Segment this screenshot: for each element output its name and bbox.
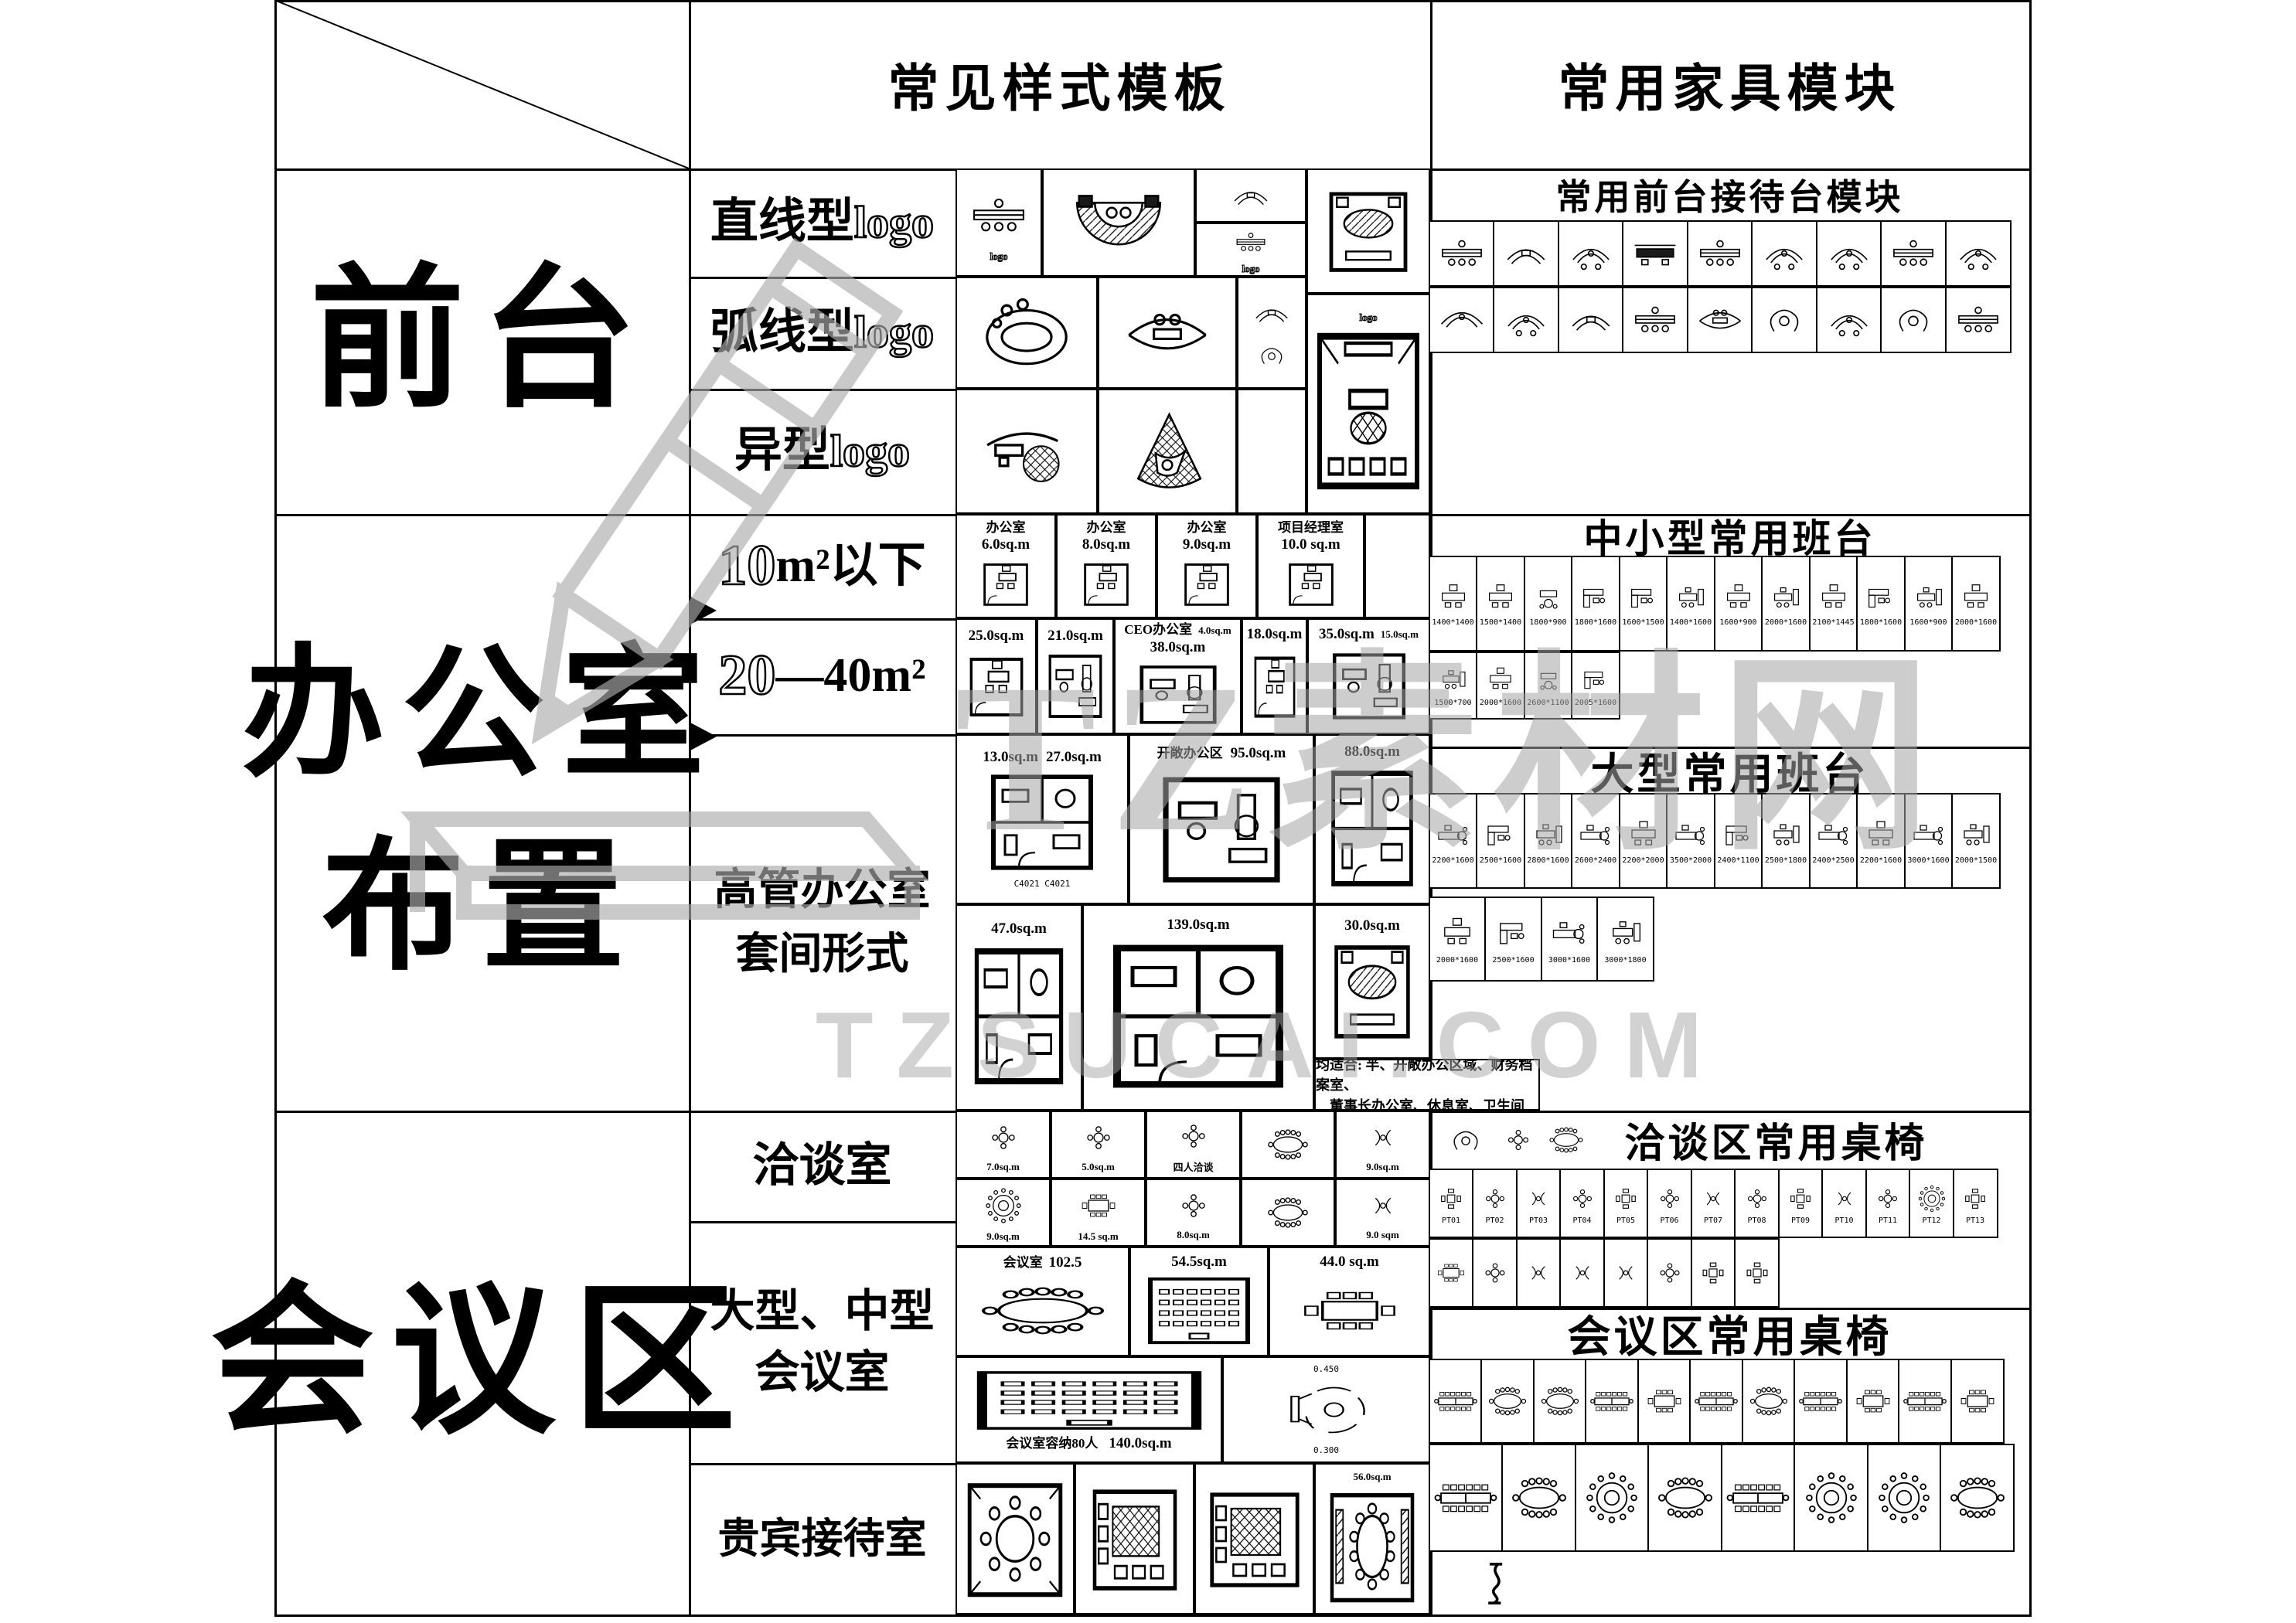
vip-round-room-icon xyxy=(961,1472,1069,1605)
template-straight-reception-4 xyxy=(1306,168,1430,294)
furniture-cell: PT10 xyxy=(1821,1169,1867,1238)
furniture-cell xyxy=(1687,287,1753,353)
classroom-plan-icon xyxy=(1141,1273,1257,1349)
furniture-cell: 1500*700 xyxy=(1429,652,1478,720)
furniture-cell: 2000*1500 xyxy=(1951,793,2001,889)
conference-table-icon xyxy=(1507,1465,1572,1530)
negotiation-table-icon xyxy=(983,1117,1024,1159)
executive-line2: 套间形式 xyxy=(736,930,909,979)
table-chair-icon xyxy=(1828,1182,1862,1216)
dimension-label: 1800*1600 xyxy=(1860,619,1902,627)
executive-suite-plan-icon xyxy=(1102,935,1295,1097)
header-large-desks: 大型常用班台 xyxy=(1430,748,2029,793)
conference-table-icon xyxy=(1725,1465,1790,1530)
row-label-executive-suite: 高管办公室 套间形式 xyxy=(689,734,956,1111)
furniture-cell: 1500*1400 xyxy=(1476,556,1525,652)
row-label-large-medium-meeting: 大型、中型 会议室 xyxy=(689,1221,956,1463)
room-area: 56.0sq.m xyxy=(1353,1471,1391,1483)
table-chair-icon xyxy=(1871,1182,1905,1216)
furniture-cell xyxy=(1816,220,1882,287)
small-desk-row1: 1400*1400 1500*1400 1800*900 1800*1600 1… xyxy=(1430,556,2001,652)
furniture-cell xyxy=(1751,220,1817,287)
furniture-cell xyxy=(1558,287,1624,353)
room-area-secondary: 4.0sq.m xyxy=(1198,624,1231,637)
room-area: 25.0sq.m xyxy=(969,628,1024,645)
meeting-blocks-row1 xyxy=(1430,1359,2005,1444)
furniture-cell xyxy=(1691,1238,1736,1308)
dimension-label: 1400*1600 xyxy=(1670,619,1712,627)
dimension-label: 1600*900 xyxy=(1909,619,1947,627)
room-area: 21.0sq.m xyxy=(1048,628,1103,645)
dim-label: 0.450 xyxy=(1313,1364,1339,1374)
num-10: 10 xyxy=(718,533,775,599)
furniture-cell xyxy=(1472,1238,1518,1308)
open-office-plan-icon xyxy=(1152,764,1291,893)
furniture-glyph-icon xyxy=(1565,294,1616,345)
dimension-label: 2005*1600 xyxy=(1575,699,1616,707)
template-auditorium-140sqm: 会议室容纳80人 140.0sq.m xyxy=(956,1356,1222,1463)
furniture-glyph-icon xyxy=(1759,228,1810,279)
dimension-label: 2400*2500 xyxy=(1812,857,1854,865)
desk-block-icon xyxy=(1957,580,1995,618)
template-shaped-reception-3 xyxy=(1237,389,1306,514)
conference-table-icon xyxy=(1538,1379,1582,1424)
desk-block-icon xyxy=(1579,664,1613,698)
block-code-label: PT06 xyxy=(1660,1217,1678,1225)
arrowhead-mark-icon xyxy=(690,597,717,624)
furniture-cell xyxy=(1603,1238,1649,1308)
table-chair-icon xyxy=(1521,1255,1556,1291)
room-area: 9.0sq.m xyxy=(1366,1161,1399,1173)
room-area: 35.0sq.m xyxy=(1319,627,1375,643)
block-code-label: PT13 xyxy=(1966,1217,1984,1225)
template-office-9sqm: 办公室 9.0sq.m xyxy=(1157,514,1257,618)
meeting-tables-header-label: 会议区常用桌椅 xyxy=(1568,1302,1892,1365)
dimension-label: 2200*1600 xyxy=(1432,857,1473,865)
furniture-cell: 1600*900 xyxy=(1904,556,1954,652)
reception-eye-shape-icon xyxy=(1119,285,1215,381)
circle-arrangement-icon xyxy=(1280,1376,1373,1443)
furniture-cell xyxy=(1575,1444,1650,1552)
negotiation-label: 洽谈室 xyxy=(753,1139,892,1193)
furniture-cell xyxy=(1501,1444,1576,1552)
executive-line1: 高管办公室 xyxy=(714,866,931,915)
furniture-glyph-icon xyxy=(1565,228,1616,279)
vip-oval-room-icon xyxy=(1322,1485,1422,1608)
table-chair-icon xyxy=(1609,1182,1643,1216)
furniture-cell xyxy=(1533,1359,1587,1444)
furniture-cell: PT01 xyxy=(1429,1169,1474,1238)
suffix-10: m²以下 xyxy=(775,539,925,594)
row-label-negotiation-room: 洽谈室 xyxy=(689,1111,956,1221)
furniture-cell xyxy=(1493,220,1559,287)
dimension-label: 2100*1445 xyxy=(1812,619,1854,627)
dimension-label: 1800*1600 xyxy=(1575,619,1616,627)
furniture-cell xyxy=(1429,1238,1474,1308)
conference-table-icon xyxy=(1653,1465,1718,1530)
suite-area: 27.0sq.m xyxy=(1046,750,1102,766)
template-office-25sqm: 25.0sq.m xyxy=(956,618,1037,734)
row-label-straight-logo: 直线型logo xyxy=(689,168,956,277)
template-shaped-reception-2 xyxy=(1098,389,1237,514)
dimension-label: 1600*900 xyxy=(1719,619,1756,627)
suite-note-line1: 均适合: 半、开敞办公区域、财务档案室、 xyxy=(1316,1059,1538,1094)
cad-template-sheet: 常见样式模板 常用家具模块 前台 办公室 布置 会议区 直线型logo 弧线型l… xyxy=(0,0,2296,1623)
template-arc-reception-3 xyxy=(1237,277,1306,389)
furniture-cell: PT03 xyxy=(1516,1169,1562,1238)
furniture-cell xyxy=(1689,1359,1743,1444)
furniture-cell xyxy=(1647,1444,1722,1552)
suite-plan-icon xyxy=(1326,763,1419,894)
row-label-20-40sqm: 20—40m² xyxy=(689,618,956,734)
template-office-8sqm: 办公室 8.0sq.m xyxy=(1056,514,1157,618)
reception-fan-hatched-icon xyxy=(1119,403,1216,500)
dimension-label: 3500*2000 xyxy=(1670,857,1712,865)
template-negotiation-2: 5.0sq.m xyxy=(1051,1111,1146,1179)
template-round-arrangement: 0.450 0.300 xyxy=(1222,1356,1430,1463)
table-chair-icon xyxy=(1565,1255,1600,1291)
furniture-cell: PT06 xyxy=(1647,1169,1692,1238)
diagonal-corner-cell xyxy=(274,0,689,168)
reception-blocks-row2 xyxy=(1430,287,2012,353)
furniture-cell xyxy=(1429,1444,1504,1552)
desk-block-icon xyxy=(1605,914,1647,955)
header-negotiation-tables: 洽谈区常用桌椅 xyxy=(1430,1111,2029,1169)
furniture-cell: 2600*1100 xyxy=(1524,652,1573,720)
suite-area: 47.0sq.m xyxy=(991,921,1047,937)
desk-block-icon xyxy=(1814,817,1853,856)
room-name: 办公室 xyxy=(1187,521,1227,536)
furniture-cell: 2400*2500 xyxy=(1809,793,1858,889)
room-area-secondary: 15.0sq.m xyxy=(1381,628,1419,641)
furniture-cell xyxy=(1940,1444,2015,1552)
template-arc-reception-2 xyxy=(1098,277,1237,389)
template-vip-oval: 56.0sq.m xyxy=(1314,1463,1430,1614)
furniture-cell xyxy=(1637,1359,1691,1444)
template-office-21sqm: 21.0sq.m xyxy=(1037,618,1114,734)
dimension-label: 2200*2000 xyxy=(1622,857,1664,865)
dimension-label: 1800*900 xyxy=(1529,619,1566,627)
dimension-label: 1400*1400 xyxy=(1432,619,1473,627)
table-chair-icon xyxy=(1565,1182,1599,1216)
furniture-glyph-icon xyxy=(1824,228,1875,279)
desk-block-icon xyxy=(1767,580,1804,618)
furniture-cell: PT05 xyxy=(1603,1169,1649,1238)
desk-block-icon xyxy=(1548,914,1590,955)
negotiation-tables-header-label: 洽谈区常用桌椅 xyxy=(1624,1111,1927,1169)
furniture-cell: 2200*2000 xyxy=(1619,793,1668,889)
conference-table-icon xyxy=(1746,1379,1791,1424)
chair-cluster-icon xyxy=(1500,1121,1537,1159)
furniture-cell: 2600*2400 xyxy=(1571,793,1620,889)
suite-area: 95.0sq.m xyxy=(1231,746,1286,762)
negotiation-oval-icon xyxy=(1264,1189,1312,1237)
ceo-office-plan-icon xyxy=(1133,658,1224,730)
desk-block-icon xyxy=(1719,817,1758,856)
dimension-label: 2000*1600 xyxy=(1480,699,1521,707)
furniture-glyph-icon xyxy=(1501,228,1552,279)
room-area: 8.0sq.m xyxy=(1177,1229,1210,1241)
furniture-cell xyxy=(1622,287,1688,353)
desk-block-icon xyxy=(1625,580,1662,618)
template-negotiation-10: 9.0 sqm xyxy=(1335,1179,1430,1247)
section-label-reception: 前台 xyxy=(274,168,689,514)
suite-area: 13.0sq.m xyxy=(983,750,1038,766)
section-label-reception-text: 前台 xyxy=(310,260,653,423)
desk-block-icon xyxy=(1481,817,1520,856)
block-code-label: PT01 xyxy=(1442,1217,1460,1225)
template-negotiation-1: 7.0sq.m xyxy=(956,1111,1051,1179)
furniture-cell: 2200*1600 xyxy=(1856,793,1906,889)
table-chair-icon xyxy=(1958,1182,1992,1216)
vip-carpet-room-icon xyxy=(1201,1481,1308,1597)
furniture-cell xyxy=(1721,1444,1796,1552)
row-label-under-10sqm: 10m²以下 xyxy=(689,514,956,618)
conference-table-icon xyxy=(1642,1379,1687,1424)
furniture-cell: 2800*1600 xyxy=(1524,793,1573,889)
furniture-cell xyxy=(1794,1444,1868,1552)
large-desk-row2: 2000*1600 2500*1600 3000*1600 3000*1800 xyxy=(1430,897,1654,982)
reception-room-oval-icon xyxy=(1322,185,1415,277)
block-code-label: PT02 xyxy=(1485,1217,1504,1225)
furniture-glyph-icon xyxy=(1436,228,1487,279)
capacity-label: 会议室容纳80人 xyxy=(1006,1437,1098,1451)
table-chair-icon xyxy=(1478,1182,1512,1216)
template-negotiation-9 xyxy=(1241,1179,1335,1247)
furniture-cell: PT12 xyxy=(1909,1169,1954,1238)
table-chair-icon xyxy=(1477,1255,1513,1291)
conference-table-icon xyxy=(1589,1379,1634,1424)
table-chair-icon xyxy=(1696,1182,1730,1216)
template-negotiation-3: 四人洽谈 xyxy=(1146,1111,1241,1179)
desk-block-icon xyxy=(1484,664,1518,698)
template-vip-carpet-2 xyxy=(1194,1463,1314,1614)
table-chair-icon xyxy=(1653,1182,1687,1216)
dimension-label: 1500*1400 xyxy=(1480,619,1521,627)
furniture-cell xyxy=(1734,1238,1780,1308)
room-caption: 四人洽谈 xyxy=(1173,1159,1213,1174)
conference-table-icon xyxy=(1694,1379,1739,1424)
template-training-54sqm: 54.5sq.m xyxy=(1129,1247,1269,1356)
suite-plan-icon xyxy=(969,939,1069,1094)
header-furniture-modules-label: 常用家具模块 xyxy=(1558,47,1902,121)
small-desk-row2: 1500*700 2000*1600 2600*1100 2005*1600 xyxy=(1430,652,1620,720)
block-code-label: PT09 xyxy=(1791,1217,1810,1225)
header-style-templates-label: 常见样式模板 xyxy=(888,47,1231,121)
desk-block-icon xyxy=(1434,817,1473,856)
shaped-logo-word: logo xyxy=(830,426,910,478)
furniture-cell: 3000*1800 xyxy=(1596,897,1654,982)
furniture-cell xyxy=(1429,287,1495,353)
row-label-shaped-logo: 异型logo xyxy=(689,389,956,514)
furniture-glyph-icon xyxy=(1953,228,2004,279)
conference-table-icon xyxy=(1955,1379,2000,1424)
template-ceo-office-38sqm: CEO办公室 4.0sq.m 38.0sq.m xyxy=(1114,618,1242,734)
suite-area: 30.0sq.m xyxy=(1344,918,1400,934)
room-area: 102.5 xyxy=(1049,1255,1082,1271)
meeting-room-line2: 会议室 xyxy=(755,1347,889,1399)
shaped-label: 异型 xyxy=(734,424,830,478)
furniture-glyph-icon xyxy=(1695,294,1746,345)
small-office-plan-icon xyxy=(1283,556,1339,611)
meeting-room-line1: 大型、中型 xyxy=(710,1286,934,1338)
furniture-cell: 2000*1600 xyxy=(1951,556,2001,652)
furniture-glyph-icon xyxy=(1888,294,1939,345)
furniture-cell: 2200*1600 xyxy=(1429,793,1478,889)
furniture-cell: PT04 xyxy=(1559,1169,1605,1238)
block-code-label: PT05 xyxy=(1616,1217,1635,1225)
template-negotiation-7: 14.5 sq.m xyxy=(1051,1179,1146,1247)
room-area: 8.0sq.m xyxy=(1082,537,1130,553)
header-furniture-modules: 常用家具模块 xyxy=(1430,0,2029,168)
arc-logo-word: logo xyxy=(854,307,934,359)
table-chair-icon xyxy=(1783,1182,1817,1216)
furniture-cell xyxy=(1898,1359,1952,1444)
room-area: 9.0 sqm xyxy=(1366,1229,1399,1241)
dimension-label: 2000*1500 xyxy=(1955,857,1997,865)
furniture-cell: 1400*1400 xyxy=(1429,556,1478,652)
negotiation-oval-icon xyxy=(1264,1121,1312,1169)
small-office-plan-icon xyxy=(1179,556,1235,611)
furniture-cell xyxy=(1429,1359,1483,1444)
furniture-cell xyxy=(1794,1359,1848,1444)
block-code-label: PT08 xyxy=(1747,1217,1766,1225)
office-plan-icon xyxy=(1249,645,1300,726)
negotiation-sofa-icon xyxy=(1362,1185,1404,1227)
template-shaped-reception-1 xyxy=(956,389,1098,514)
desk-block-icon xyxy=(1766,817,1805,856)
template-vip-carpet-1 xyxy=(1075,1463,1194,1614)
furniture-cell: 1800*900 xyxy=(1524,556,1573,652)
furniture-cell: 3000*1600 xyxy=(1541,897,1599,982)
conference-table-icon xyxy=(1903,1379,1947,1424)
dimension-label: 3000*1600 xyxy=(1907,857,1949,865)
furniture-cell xyxy=(1559,1238,1605,1308)
dimension-label: 2400*1100 xyxy=(1717,857,1759,865)
conference-table-icon xyxy=(1851,1379,1896,1424)
template-meeting-44sqm: 44.0 sq.m xyxy=(1269,1247,1430,1356)
desk-block-icon xyxy=(1671,817,1710,856)
office-layout-line1: 办公室 xyxy=(242,641,722,791)
straight-logo-word: logo xyxy=(854,197,934,249)
room-area: 6.0sq.m xyxy=(982,537,1030,553)
conference-table-icon xyxy=(1872,1465,1937,1530)
dimension-label: 3000*1600 xyxy=(1548,957,1590,965)
dimension-label: 2500*1600 xyxy=(1492,957,1534,965)
table-chair-icon xyxy=(1434,1182,1468,1216)
suite-plan-icon xyxy=(1327,937,1417,1045)
template-suite-30sqm: 30.0sq.m xyxy=(1314,904,1430,1059)
logo-mark: logo xyxy=(1359,311,1377,324)
conference-table-icon xyxy=(1579,1465,1644,1530)
desk-block-icon xyxy=(1815,580,1852,618)
num-20: 20 xyxy=(718,643,775,709)
furniture-glyph-icon xyxy=(1630,228,1681,279)
dimension-label: 2500*1800 xyxy=(1765,857,1807,865)
furniture-cell xyxy=(1867,1444,1942,1552)
dimension-label: 1600*1500 xyxy=(1622,619,1664,627)
block-code-label: PT10 xyxy=(1834,1217,1853,1225)
furniture-cell: 1400*1600 xyxy=(1666,556,1715,652)
table-chair-icon xyxy=(1652,1255,1688,1291)
furniture-cell: PT11 xyxy=(1865,1169,1911,1238)
reception-semicircle-hatched-icon xyxy=(1069,173,1168,272)
dimension-label: 2800*1600 xyxy=(1527,857,1569,865)
furniture-cell: 2400*1100 xyxy=(1714,793,1763,889)
furniture-cell xyxy=(1558,220,1624,287)
dimension-label: 1500*700 xyxy=(1434,699,1471,707)
desk-block-icon xyxy=(1577,580,1614,618)
template-showroom-plan: logo xyxy=(1306,294,1430,514)
block-code-label: PT04 xyxy=(1572,1217,1591,1225)
template-negotiation-5: 9.0sq.m xyxy=(1335,1111,1430,1179)
furniture-cell xyxy=(1945,220,2012,287)
desk-block-icon xyxy=(1862,817,1900,856)
furniture-glyph-icon xyxy=(1501,294,1552,345)
furniture-cell xyxy=(1816,287,1882,353)
furniture-glyph-icon xyxy=(1759,294,1810,345)
chair-cluster-icon xyxy=(1546,1120,1586,1160)
furniture-cell: 2000*1600 xyxy=(1476,652,1525,720)
template-straight-reception-3a xyxy=(1195,168,1306,223)
furniture-cell xyxy=(1429,220,1495,287)
furniture-cell xyxy=(1516,1238,1562,1308)
room-area: 10.0 sq.m xyxy=(1281,537,1340,553)
table-chair-icon xyxy=(1915,1182,1949,1216)
negotiation-blocks-row2 xyxy=(1430,1238,1780,1308)
logo-mark: logo xyxy=(990,250,1007,263)
furniture-glyph-icon xyxy=(1436,294,1487,345)
template-office-6sqm: 办公室 6.0sq.m xyxy=(956,514,1056,618)
dimension-label: 2000*1600 xyxy=(1765,619,1807,627)
furniture-cell: 1600*1500 xyxy=(1619,556,1668,652)
office-layout-line2: 布置 xyxy=(322,834,642,984)
desk-block-icon xyxy=(1910,580,1947,618)
negotiation-table-icon xyxy=(1173,1115,1214,1157)
template-blank-cell xyxy=(1364,514,1430,618)
furniture-cell: 2500*1800 xyxy=(1761,793,1811,889)
room-area: 54.5sq.m xyxy=(1171,1254,1227,1271)
dimension-label: 2000*1600 xyxy=(1436,957,1478,965)
furniture-cell: PT07 xyxy=(1691,1169,1736,1238)
meeting-area-text: 会议区 xyxy=(210,1277,753,1449)
table-chair-icon xyxy=(1739,1255,1775,1291)
reception-oval-ring-icon xyxy=(977,284,1076,383)
furniture-cell: 1800*1600 xyxy=(1856,556,1906,652)
dimension-label: 2500*1600 xyxy=(1480,857,1521,865)
room-area: 9.0sq.m xyxy=(986,1230,1020,1243)
room-area: 14.5 sq.m xyxy=(1078,1230,1118,1243)
office-plan-icon xyxy=(1044,647,1107,724)
table-border-bottom xyxy=(274,1614,2032,1617)
template-negotiation-6: 9.0sq.m xyxy=(956,1179,1051,1247)
dimension-label: 2200*1600 xyxy=(1860,857,1902,865)
conference-room-icon xyxy=(1288,1273,1412,1349)
furniture-cell: 2500*1600 xyxy=(1476,793,1525,889)
template-straight-reception-2 xyxy=(1042,168,1195,277)
furniture-cell: PT09 xyxy=(1778,1169,1824,1238)
furniture-glyph-icon xyxy=(1695,228,1746,279)
oval-conference-icon xyxy=(969,1274,1116,1348)
negotiation-sofa-icon xyxy=(1362,1117,1404,1159)
reception-canopy-icon xyxy=(1228,173,1273,218)
arc-label: 弧线型 xyxy=(710,305,854,360)
furniture-cell xyxy=(1846,1359,1900,1444)
desk-block-icon xyxy=(1576,817,1615,856)
table-chair-icon xyxy=(1608,1255,1644,1291)
negotiation-blocks-row1: PT01 PT02 PT03 PT04 PT05 PT06 PT07 PT08 … xyxy=(1430,1169,1998,1238)
reception-curve-grid-icon xyxy=(975,400,1078,503)
